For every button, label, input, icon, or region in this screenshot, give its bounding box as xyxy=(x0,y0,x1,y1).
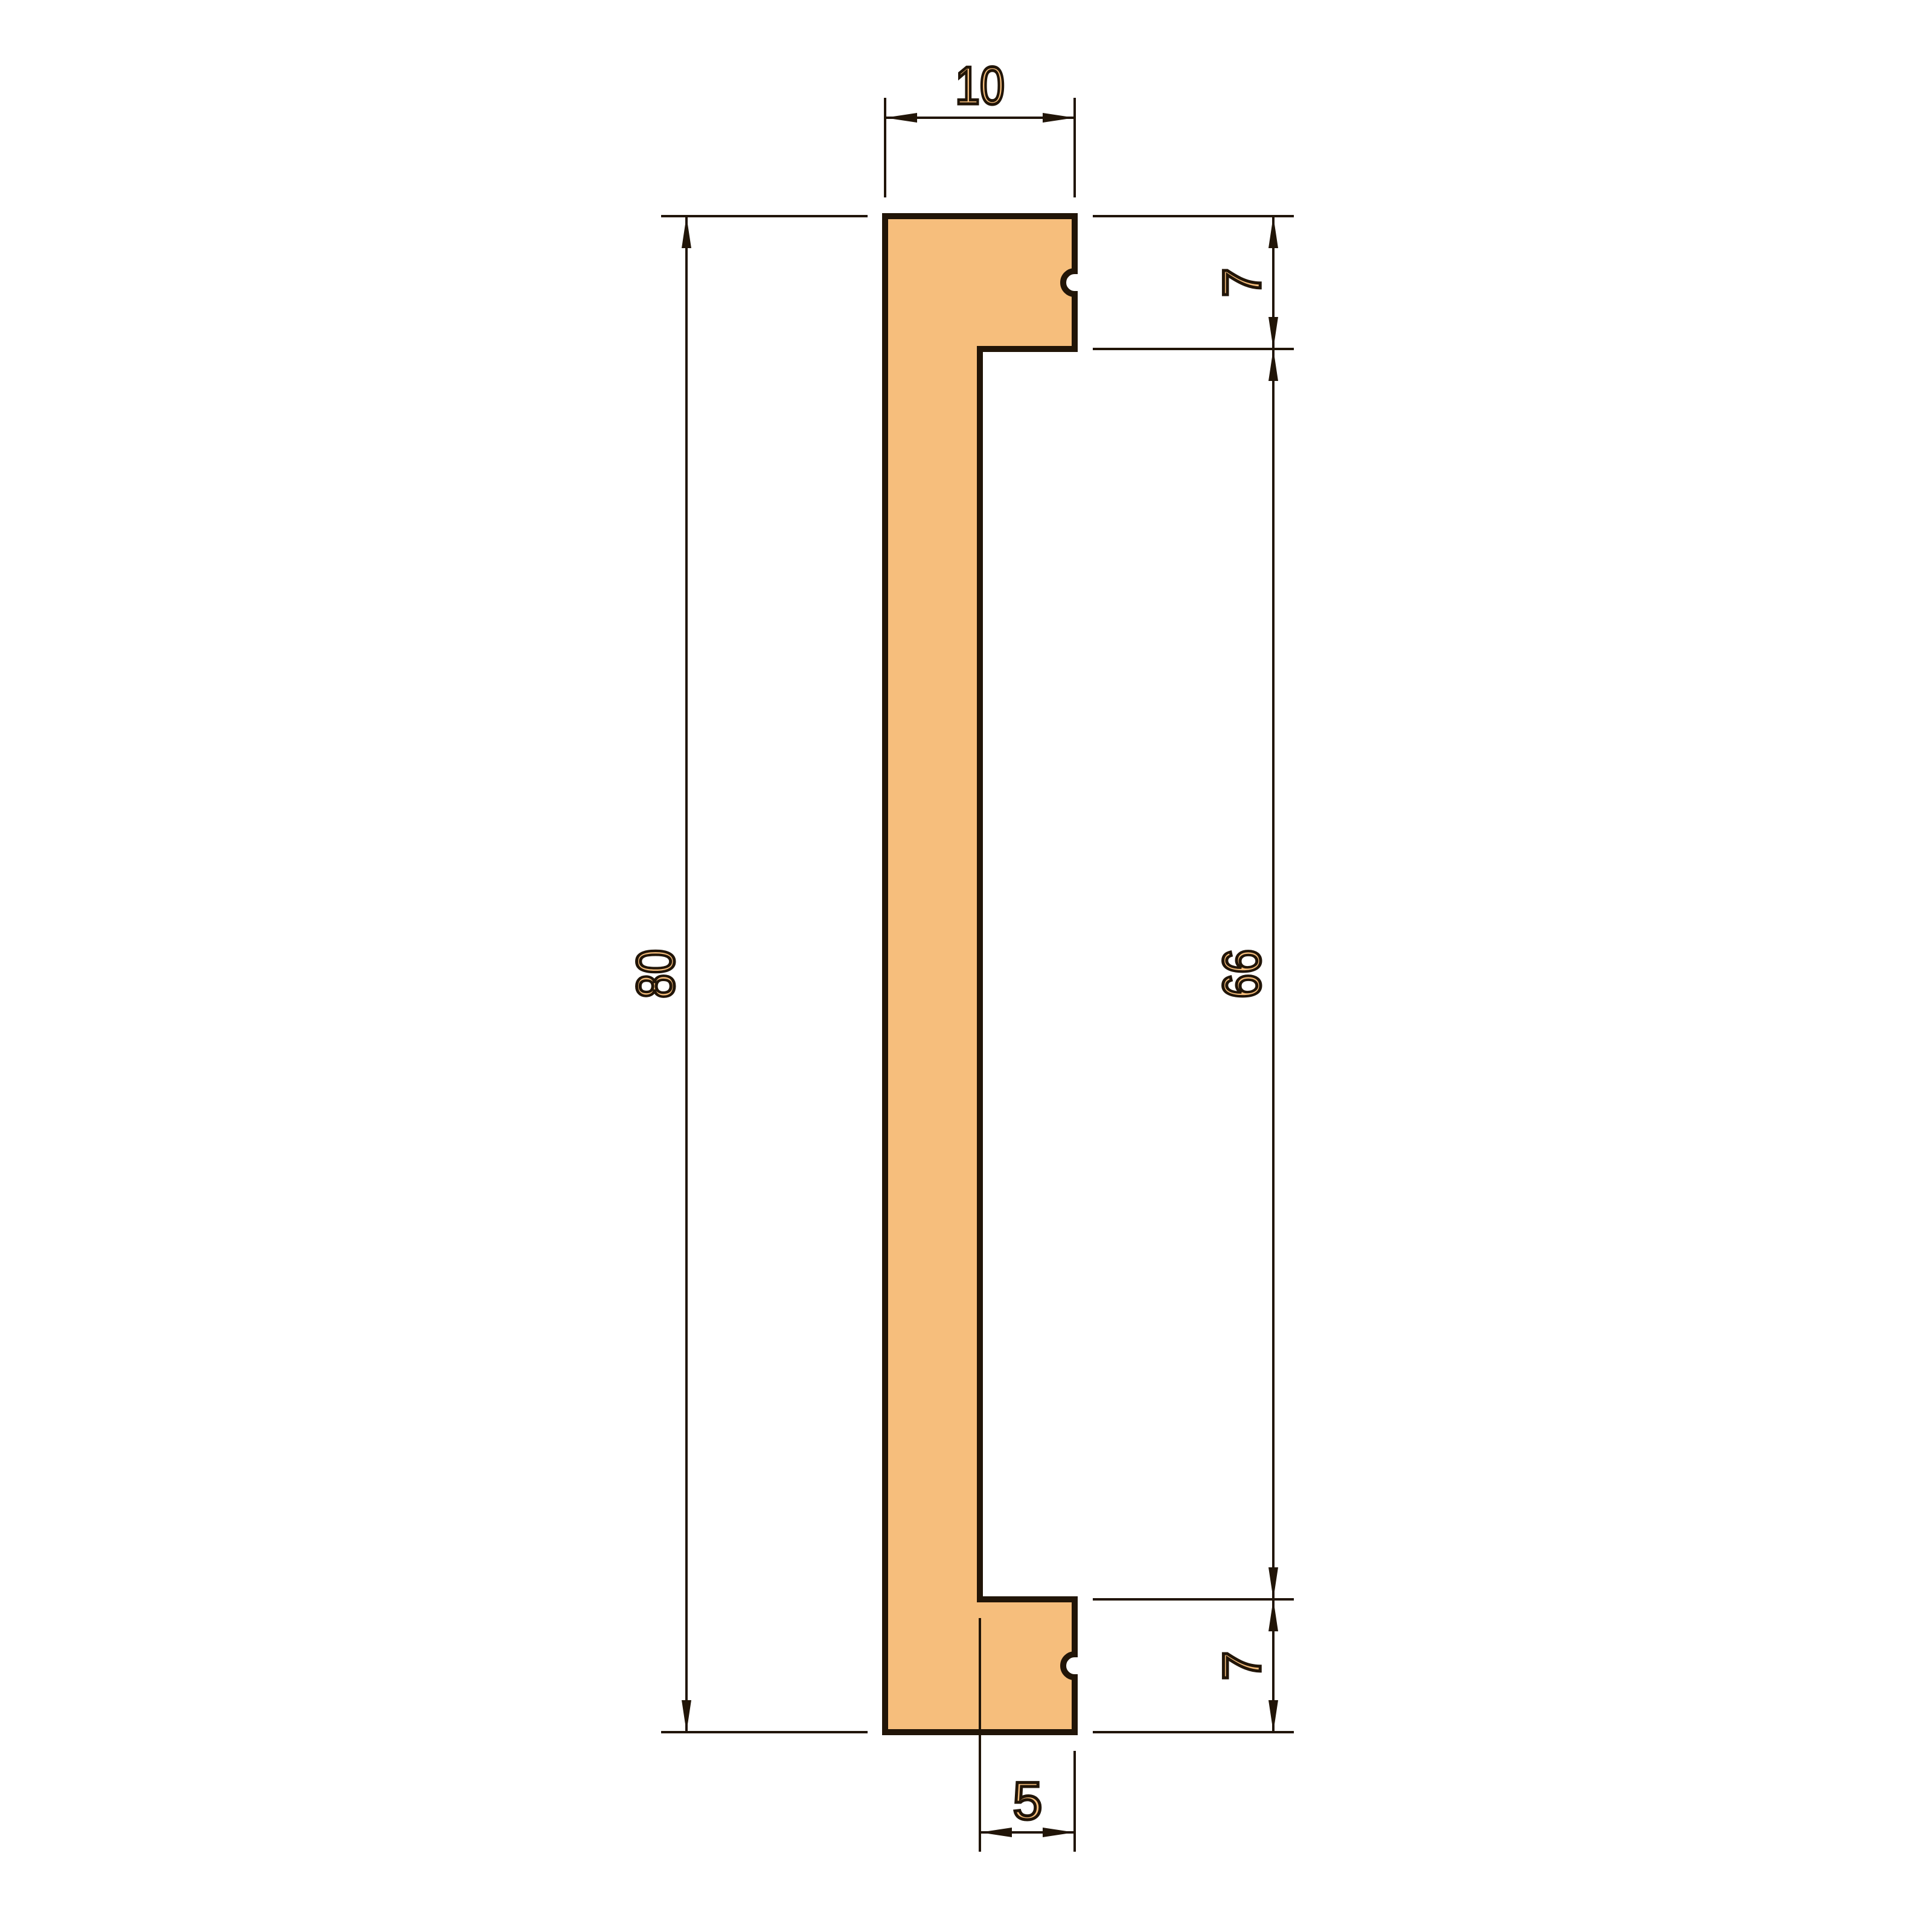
arrowhead-left xyxy=(885,113,917,123)
drawing-canvas: 10 80 7 66 7 5 xyxy=(0,0,1932,1932)
arrowhead-right xyxy=(1043,1828,1075,1837)
arrowhead-left xyxy=(980,1828,1012,1837)
dim-label-bottom-flange: 7 xyxy=(1212,1651,1271,1681)
dim-label-overall-width: 10 xyxy=(955,56,1005,115)
profile-shape xyxy=(885,216,1075,1732)
arrowhead-right xyxy=(1043,113,1075,123)
dim-label-bottom-web: 5 xyxy=(1013,1771,1043,1831)
arrowhead-up xyxy=(1268,1599,1278,1631)
arrowhead-down xyxy=(682,1700,691,1732)
dim-label-top-flange: 7 xyxy=(1212,268,1271,298)
dim-overall-width: 10 xyxy=(885,56,1075,197)
arrowhead-down xyxy=(1268,317,1278,349)
arrowhead-up xyxy=(1268,349,1278,381)
dim-right-stack: 7 66 7 xyxy=(1093,216,1294,1732)
arrowhead-down xyxy=(1268,1567,1278,1599)
dim-label-overall-height: 80 xyxy=(625,949,685,999)
dim-label-inner-height: 66 xyxy=(1212,949,1271,999)
arrowhead-up xyxy=(682,216,691,248)
dim-overall-height: 80 xyxy=(625,216,868,1732)
arrowhead-down xyxy=(1268,1700,1278,1732)
profile xyxy=(885,216,1075,1732)
cad-drawing: 10 80 7 66 7 5 xyxy=(0,0,1932,1932)
arrowhead-up xyxy=(1268,216,1278,248)
